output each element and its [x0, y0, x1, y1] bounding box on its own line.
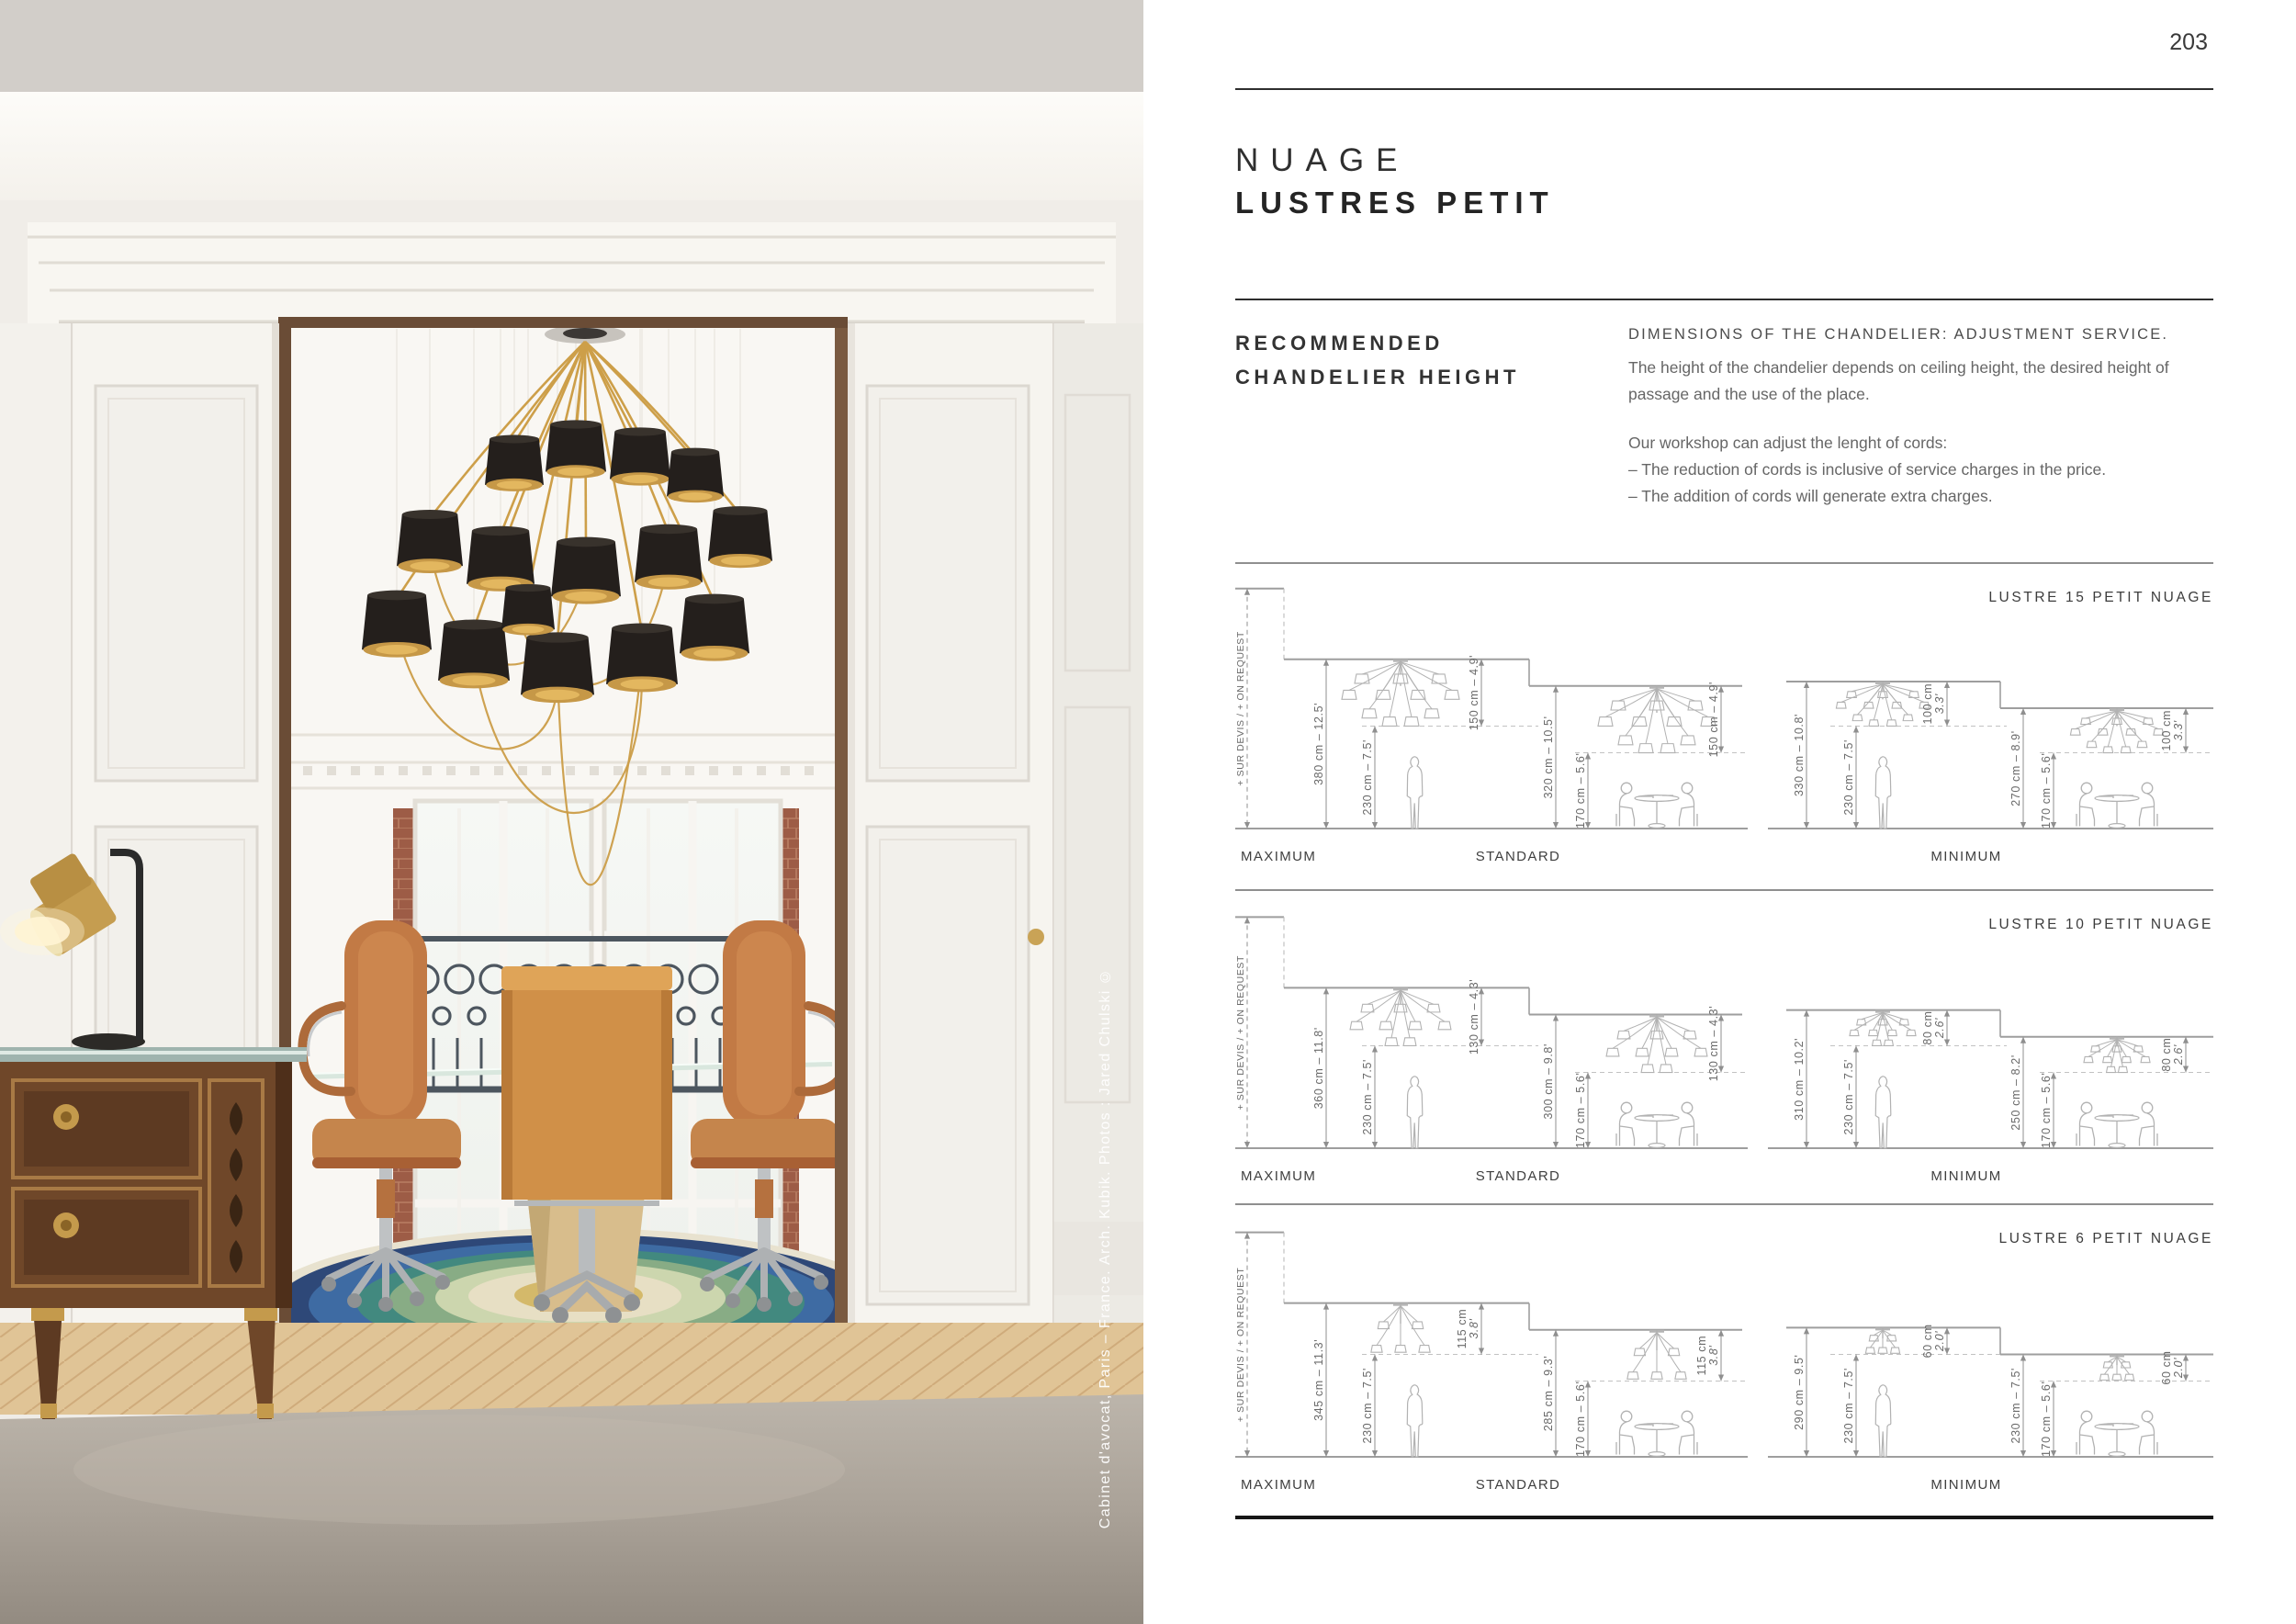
chandelier-drawing — [1606, 1015, 1707, 1073]
dimension: 115 cm3.8' — [1456, 1303, 1484, 1355]
product-variant: LUSTRES PETIT — [1235, 182, 1555, 224]
table-scene-figure — [2077, 1102, 2157, 1147]
svg-text:100 cm: 100 cm — [2160, 710, 2173, 751]
dimension: 310 cm – 10.2' — [1793, 1010, 1809, 1148]
paragraph-line: The height of the chandelier depends on … — [1628, 355, 2216, 381]
divider-title — [1235, 299, 2213, 300]
dimensions-heading: DIMENSIONS OF THE CHANDELIER: ADJUSTMENT… — [1628, 326, 2216, 344]
table-scene-figure — [1616, 1411, 1697, 1456]
dimension: 170 cm – 5.6' — [1574, 1382, 1591, 1457]
svg-text:100 cm: 100 cm — [1921, 683, 1934, 725]
chandelier-drawing — [1350, 987, 1451, 1045]
svg-text:3.8': 3.8' — [1707, 1346, 1720, 1366]
svg-text:3.3': 3.3' — [1933, 694, 1946, 714]
svg-text:250 cm – 8.2': 250 cm – 8.2' — [2009, 1054, 2022, 1130]
svg-text:130 cm – 4.3': 130 cm – 4.3' — [1468, 979, 1480, 1054]
svg-text:345 cm – 11.3': 345 cm – 11.3' — [1312, 1339, 1325, 1421]
svg-text:230 cm – 7.5': 230 cm – 7.5' — [1842, 1059, 1855, 1134]
svg-text:2.6': 2.6' — [2172, 1044, 2185, 1066]
svg-text:115 cm: 115 cm — [1695, 1336, 1708, 1376]
dimension: 170 cm – 5.6' — [2040, 1382, 2056, 1457]
height-diagram: + SUR DEVIS / + ON REQUEST380 cm – 12.5'… — [1235, 562, 2213, 852]
dimension: 230 cm – 7.5' — [1361, 1354, 1378, 1457]
group-label-maximum: MAXIMUM — [1241, 1168, 1316, 1184]
dimension: 230 cm – 7.5' — [2009, 1354, 2026, 1457]
svg-text:+ SUR DEVIS / + ON REQUEST: + SUR DEVIS / + ON REQUEST — [1235, 955, 1246, 1110]
paragraph-line: – The addition of cords will generate ex… — [1628, 483, 2216, 510]
dimension: 250 cm – 8.2' — [2009, 1037, 2026, 1148]
person-figure — [1875, 1385, 1891, 1457]
svg-text:380 cm – 12.5': 380 cm – 12.5' — [1312, 703, 1325, 785]
person-figure — [1407, 1077, 1423, 1148]
height-diagram: + SUR DEVIS / + ON REQUEST345 cm – 11.3'… — [1235, 1203, 2213, 1494]
dimension: + SUR DEVIS / + ON REQUEST — [1235, 917, 1250, 1148]
catalog-page: Cabinet d'avocat, Paris – France. Arch. … — [0, 0, 2296, 1624]
divider-top — [1235, 88, 2213, 90]
photo-credit: Cabinet d'avocat, Paris – France. Arch. … — [1097, 967, 1114, 1528]
photo-right-door — [848, 323, 1052, 1350]
group-label-standard: STANDARD — [1445, 1477, 1592, 1493]
svg-text:60 cm: 60 cm — [1921, 1324, 1934, 1358]
svg-text:3.8': 3.8' — [1468, 1318, 1480, 1338]
svg-text:330 cm – 10.8': 330 cm – 10.8' — [1793, 714, 1806, 796]
svg-text:150 cm – 4.9': 150 cm – 4.9' — [1707, 682, 1720, 757]
interior-photo-art — [0, 0, 1143, 1624]
chandelier-drawing — [1836, 682, 1929, 727]
dimension: 170 cm – 5.6' — [2040, 753, 2056, 829]
svg-text:360 cm – 11.8': 360 cm – 11.8' — [1312, 1027, 1325, 1109]
group-label-minimum: MINIMUM — [1893, 1168, 2040, 1184]
svg-text:285 cm – 9.3': 285 cm – 9.3' — [1542, 1356, 1555, 1431]
svg-text:60 cm: 60 cm — [2160, 1350, 2173, 1384]
recommended-heading-line1: RECOMMENDED — [1235, 326, 1520, 360]
dimension: 345 cm – 11.3' — [1312, 1303, 1329, 1457]
svg-text:115 cm: 115 cm — [1456, 1309, 1469, 1349]
svg-text:80 cm: 80 cm — [1921, 1011, 1934, 1045]
chandelier-drawing — [2084, 1037, 2150, 1073]
dimension: 60 cm2.0' — [1921, 1324, 1950, 1358]
svg-text:230 cm – 7.5': 230 cm – 7.5' — [2009, 1368, 2022, 1443]
svg-text:170 cm – 5.6': 170 cm – 5.6' — [2040, 1382, 2053, 1457]
paragraph-line: – The reduction of cords is inclusive of… — [1628, 457, 2216, 483]
dimension: 230 cm – 7.5' — [1361, 1045, 1378, 1148]
chandelier-drawing — [2070, 708, 2163, 753]
dimension: 170 cm – 5.6' — [1574, 1073, 1591, 1148]
person-figure — [1407, 1385, 1423, 1457]
svg-text:150 cm – 4.9': 150 cm – 4.9' — [1468, 655, 1480, 730]
lustre-section: LUSTRE 15 PETIT NUAGE+ SUR DEVIS / + ON … — [1235, 562, 2213, 874]
lustre-section: LUSTRE 6 PETIT NUAGE+ SUR DEVIS / + ON R… — [1235, 1203, 2213, 1516]
page-number: 203 — [2169, 29, 2208, 56]
table-scene-figure — [2077, 1411, 2157, 1456]
group-label-maximum: MAXIMUM — [1241, 849, 1316, 864]
svg-text:+ SUR DEVIS / + ON REQUEST: + SUR DEVIS / + ON REQUEST — [1235, 631, 1246, 785]
dimension: 230 cm – 7.5' — [1842, 1354, 1859, 1457]
svg-text:270 cm – 8.9': 270 cm – 8.9' — [2009, 730, 2022, 806]
person-figure — [1407, 757, 1423, 829]
svg-text:170 cm – 5.6': 170 cm – 5.6' — [1574, 1073, 1587, 1148]
dimension: 80 cm2.6' — [2160, 1037, 2189, 1073]
product-title: NUAGE LUSTRES PETIT — [1235, 140, 1555, 224]
svg-text:230 cm – 7.5': 230 cm – 7.5' — [1361, 1059, 1374, 1134]
svg-text:230 cm – 7.5': 230 cm – 7.5' — [1842, 1368, 1855, 1443]
product-family: NUAGE — [1235, 140, 1555, 182]
chandelier-drawing — [1850, 1010, 1916, 1046]
dimension: 230 cm – 7.5' — [1361, 726, 1378, 829]
dimension: 80 cm2.6' — [1921, 1010, 1950, 1046]
svg-text:170 cm – 5.6': 170 cm – 5.6' — [2040, 753, 2053, 829]
dimension: 270 cm – 8.9' — [2009, 708, 2026, 829]
dimension: 150 cm – 4.9' — [1707, 682, 1724, 757]
table-scene-figure — [2077, 783, 2157, 828]
dimension: 300 cm – 9.8' — [1542, 1015, 1559, 1149]
paragraph-line: passage and the use of the place. — [1628, 381, 2216, 408]
group-label-minimum: MINIMUM — [1893, 1477, 2040, 1493]
svg-text:2.6': 2.6' — [1933, 1018, 1946, 1039]
dimension: 115 cm3.8' — [1695, 1330, 1724, 1382]
recommended-heading-line2: CHANDELIER HEIGHT — [1235, 360, 1520, 394]
dimension: 60 cm2.0' — [2160, 1350, 2189, 1384]
dimension: 330 cm – 10.8' — [1793, 682, 1809, 829]
svg-text:2.0': 2.0' — [2172, 1358, 2185, 1379]
dimension: 290 cm – 9.5' — [1793, 1327, 1809, 1457]
svg-text:130 cm – 4.3': 130 cm – 4.3' — [1707, 1006, 1720, 1081]
page-content: 203 NUAGE LUSTRES PETIT RECOMMENDED CHAN… — [1235, 0, 2213, 1624]
svg-text:290 cm – 9.5': 290 cm – 9.5' — [1793, 1354, 1806, 1429]
table-scene-figure — [1616, 1102, 1697, 1147]
dimension: 230 cm – 7.5' — [1842, 1045, 1859, 1148]
chandelier-drawing — [2099, 1354, 2133, 1380]
svg-text:2.0': 2.0' — [1933, 1331, 1946, 1352]
group-label-minimum: MINIMUM — [1893, 849, 2040, 864]
person-figure — [1875, 757, 1891, 829]
photo-ceiling — [0, 0, 1143, 211]
group-label-maximum: MAXIMUM — [1241, 1477, 1316, 1493]
dimension: 285 cm – 9.3' — [1542, 1330, 1559, 1457]
dimension: 100 cm3.3' — [2160, 708, 2189, 753]
dimension: 130 cm – 4.3' — [1468, 979, 1484, 1054]
dimension: 320 cm – 10.5' — [1542, 686, 1559, 829]
dimension: + SUR DEVIS / + ON REQUEST — [1235, 589, 1250, 829]
recommended-heading: RECOMMENDED CHANDELIER HEIGHT — [1235, 326, 1520, 394]
dimension: 170 cm – 5.6' — [2040, 1073, 2056, 1148]
dimension: 360 cm – 11.8' — [1312, 987, 1329, 1148]
chandelier-drawing — [1371, 1303, 1430, 1353]
chandelier-drawing — [1598, 686, 1716, 753]
chandelier-drawing — [1342, 660, 1459, 727]
svg-text:300 cm – 9.8': 300 cm – 9.8' — [1542, 1043, 1555, 1119]
dimension: 230 cm – 7.5' — [1842, 726, 1859, 829]
svg-text:80 cm: 80 cm — [2160, 1038, 2173, 1072]
chandelier-drawing — [1627, 1330, 1686, 1380]
svg-text:230 cm – 7.5': 230 cm – 7.5' — [1842, 739, 1855, 815]
svg-text:230 cm – 7.5': 230 cm – 7.5' — [1361, 739, 1374, 815]
dimension: 100 cm3.3' — [1921, 682, 1950, 727]
paragraph-line: Our workshop can adjust the lenght of co… — [1628, 430, 2216, 457]
table-scene-figure — [1616, 783, 1697, 828]
svg-text:230 cm – 7.5': 230 cm – 7.5' — [1361, 1368, 1374, 1443]
dimension: + SUR DEVIS / + ON REQUEST — [1235, 1233, 1250, 1457]
person-figure — [1875, 1077, 1891, 1148]
group-label-standard: STANDARD — [1445, 1168, 1592, 1184]
interior-photo: Cabinet d'avocat, Paris – France. Arch. … — [0, 0, 1143, 1624]
divider-bottom — [1235, 1516, 2213, 1519]
dimension: 380 cm – 12.5' — [1312, 660, 1329, 829]
svg-text:170 cm – 5.6': 170 cm – 5.6' — [2040, 1073, 2053, 1148]
dimension: 150 cm – 4.9' — [1468, 655, 1484, 730]
svg-text:310 cm – 10.2': 310 cm – 10.2' — [1793, 1038, 1806, 1121]
dimension: 130 cm – 4.3' — [1707, 1006, 1724, 1081]
adjustment-service-text: DIMENSIONS OF THE CHANDELIER: ADJUSTMENT… — [1628, 326, 2216, 510]
lustre-section: LUSTRE 10 PETIT NUAGE+ SUR DEVIS / + ON … — [1235, 889, 2213, 1201]
svg-text:3.3': 3.3' — [2172, 720, 2185, 740]
chandelier-drawing — [1865, 1327, 1899, 1353]
svg-text:320 cm – 10.5': 320 cm – 10.5' — [1542, 716, 1555, 798]
height-diagram: + SUR DEVIS / + ON REQUEST360 cm – 11.8'… — [1235, 889, 2213, 1179]
svg-text:170 cm – 5.6': 170 cm – 5.6' — [1574, 753, 1587, 829]
dimension: 170 cm – 5.6' — [1574, 753, 1591, 829]
photo-floor — [0, 1323, 1143, 1624]
svg-text:+ SUR DEVIS / + ON REQUEST: + SUR DEVIS / + ON REQUEST — [1235, 1268, 1246, 1422]
group-label-standard: STANDARD — [1445, 849, 1592, 864]
svg-text:170 cm – 5.6': 170 cm – 5.6' — [1574, 1382, 1587, 1457]
